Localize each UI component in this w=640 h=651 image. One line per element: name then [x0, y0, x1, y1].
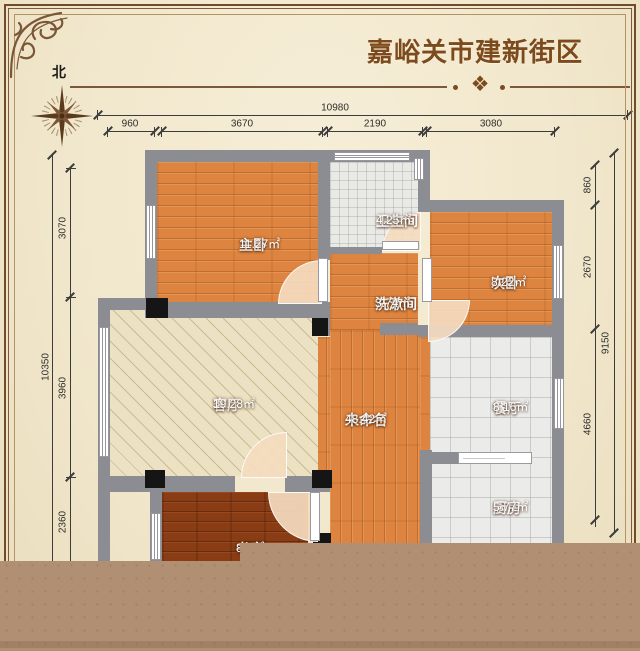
dim-left-seg-3: 2360 [58, 511, 69, 533]
divider-dot-right [500, 85, 505, 90]
window-study [151, 513, 161, 560]
door-leaf-master-bedroom [318, 258, 328, 302]
wall-living-bottom-left [98, 476, 235, 492]
window-living-room [99, 327, 109, 457]
door-leaf-study [310, 492, 320, 541]
window-dining-room [554, 378, 564, 429]
dim-left-seg-2: 3960 [58, 377, 69, 399]
dim-top-seg-2: 3670 [231, 119, 253, 130]
door-leaf-second-bedroom [422, 258, 432, 302]
kitchen-counter [458, 452, 532, 464]
divider-right [510, 86, 630, 88]
wall-washroom-bottom [380, 323, 418, 335]
dim-right-total: 9150 [601, 332, 612, 354]
divider-ornament-icon: ❖ [466, 72, 494, 97]
column [312, 470, 332, 488]
divider-dot-left [453, 85, 458, 90]
dim-right-seg-2: 2670 [583, 256, 594, 278]
room-floor-unnamed-left [316, 337, 330, 472]
compass-rose-icon [28, 82, 96, 150]
column [146, 298, 168, 318]
room-floor-unnamed [330, 330, 420, 543]
window-step [414, 158, 424, 180]
window-master-bedroom [146, 205, 156, 259]
wall-master-bottom [157, 302, 330, 318]
wall-top-right [418, 200, 564, 212]
divider-left [70, 86, 447, 88]
room-floor-washroom [330, 253, 418, 330]
wall-mid-upper [318, 162, 330, 260]
column [312, 318, 328, 336]
door-leaf-bathroom [382, 241, 419, 250]
dim-left-seg-1: 3070 [58, 217, 69, 239]
bottom-overlay-edge [0, 641, 640, 648]
dim-left-total: 10350 [41, 353, 52, 381]
room-floor-unnamed-right [420, 337, 430, 450]
dim-top-total: 10980 [321, 103, 349, 114]
dim-right-seg-1: 860 [583, 177, 594, 194]
corner-flourish-icon [5, 5, 83, 83]
room-floor-dining-kitchen [430, 337, 552, 543]
column [145, 470, 165, 488]
wall-bathroom-bottom [330, 247, 382, 254]
window-bathroom [334, 152, 410, 161]
floorplan-page: 嘉峪关市建新街区 ❖ 北 10980 960 [0, 0, 640, 651]
dim-top-seg-1: 960 [122, 119, 139, 130]
wall-kitchen-left [420, 450, 432, 543]
page-title: 嘉峪关市建新街区 [367, 32, 587, 69]
dim-right-seg-3: 4660 [583, 413, 594, 435]
dim-top-seg-3: 2190 [364, 119, 386, 130]
window-second-bedroom [553, 245, 563, 299]
wall-kitchen-stub [432, 452, 458, 464]
dim-top-seg-4: 3080 [480, 119, 502, 130]
